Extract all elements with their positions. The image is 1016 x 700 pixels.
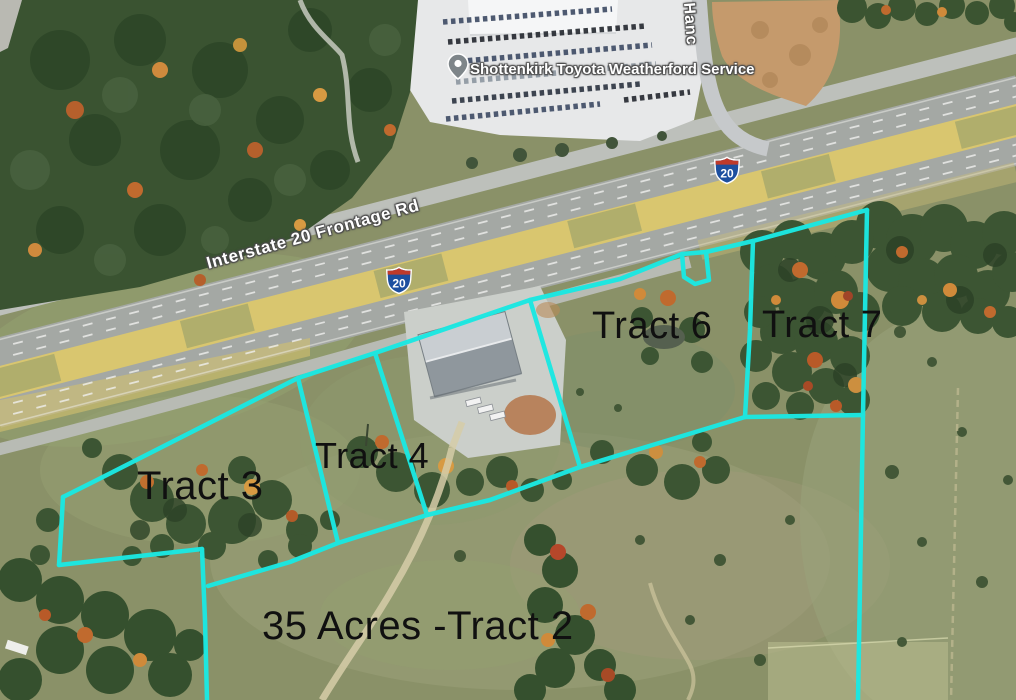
aerial-map: 20 20 Shottenkirk Toyota Weatherford Ser… [0, 0, 1016, 700]
tract7-label: Tract 7 [762, 306, 882, 344]
tract2-label: 35 Acres -Tract 2 [262, 606, 574, 646]
route-number: 20 [720, 167, 734, 181]
tract3-label: Tract 3 [137, 466, 264, 506]
boundary-tract7-south [745, 415, 863, 417]
poi-label[interactable]: Shottenkirk Toyota Weatherford Service [470, 61, 755, 78]
road-label-hancock: Hanc [679, 2, 700, 46]
tract6-label: Tract 6 [592, 307, 712, 345]
route-number: 20 [392, 277, 406, 291]
satellite-imagery: 20 20 [0, 0, 1016, 700]
tract4-label: Tract 4 [315, 438, 429, 474]
